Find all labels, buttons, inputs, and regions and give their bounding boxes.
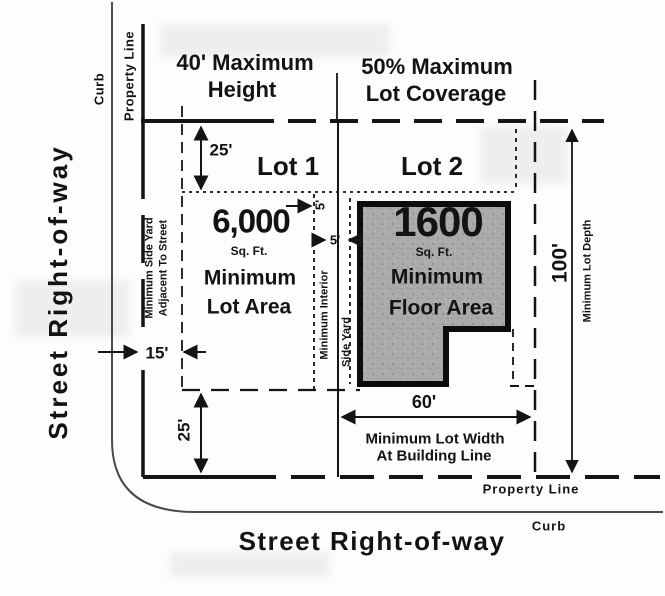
lot2-floor-value: 1600 xyxy=(393,201,482,243)
bottom-curb-label: Curb xyxy=(532,520,566,533)
side-yard-annotation-line1: Minimum Side Yard xyxy=(145,217,156,318)
max-height-heading-line1: 40' Maximum xyxy=(176,52,313,74)
lot1-name: Lot 1 xyxy=(257,153,319,179)
max-height-heading-line2: Height xyxy=(208,79,276,101)
bottom-property-line-label: Property Line xyxy=(483,483,580,496)
interior-side-annotation-line2: Side Yard xyxy=(342,317,353,367)
lot1-label-line2: Lot Area xyxy=(207,297,291,318)
interior-side-annotation-line1: Minimum Interior xyxy=(320,270,331,359)
front-setback-dim-label: 25' xyxy=(176,419,193,442)
lot-width-dim-label: 60' xyxy=(412,393,436,411)
lot1-area-unit: Sq. Ft. xyxy=(231,245,268,257)
lot-depth-annotation: Minimum Lot Depth xyxy=(583,220,594,323)
side-yard-annotation-line2: Adjacent To Street xyxy=(159,220,170,316)
lot-coverage-heading-line2: Lot Coverage xyxy=(366,83,507,105)
left-curb-label: Curb xyxy=(93,73,106,105)
lot2-floor-unit: Sq. Ft. xyxy=(416,246,453,258)
bottom-street-label: Street Right-of-way xyxy=(239,528,506,554)
lot1-label-line1: Minimum xyxy=(204,268,296,289)
lot-depth-dim-label: 100' xyxy=(550,243,571,283)
zoning-requirements-diagram: Street Right-of-way Curb Property Line P… xyxy=(0,0,665,596)
top-property-line-label: Property Line xyxy=(123,31,136,121)
lot1-area-value: 6,000 xyxy=(212,205,290,238)
lot2-label-line1: Minimum xyxy=(391,267,483,288)
left-street-label: Street Right-of-way xyxy=(45,144,71,439)
side-yard-dim-label: 15' xyxy=(146,345,169,362)
lot2-label-line2: Floor Area xyxy=(389,298,493,319)
lot-coverage-heading-line1: 50% Maximum xyxy=(361,56,513,78)
lot2-name: Lot 2 xyxy=(401,153,463,179)
lot-width-annotation-line2: At Building Line xyxy=(377,449,492,464)
lot-width-annotation-line1: Minimum Lot Width xyxy=(366,432,505,447)
interior-side-lot2-dim-label: 5' xyxy=(330,234,340,247)
interior-side-lot1-dim-label: 5' xyxy=(314,200,327,210)
rear-setback-dim-label: 25' xyxy=(210,142,233,159)
